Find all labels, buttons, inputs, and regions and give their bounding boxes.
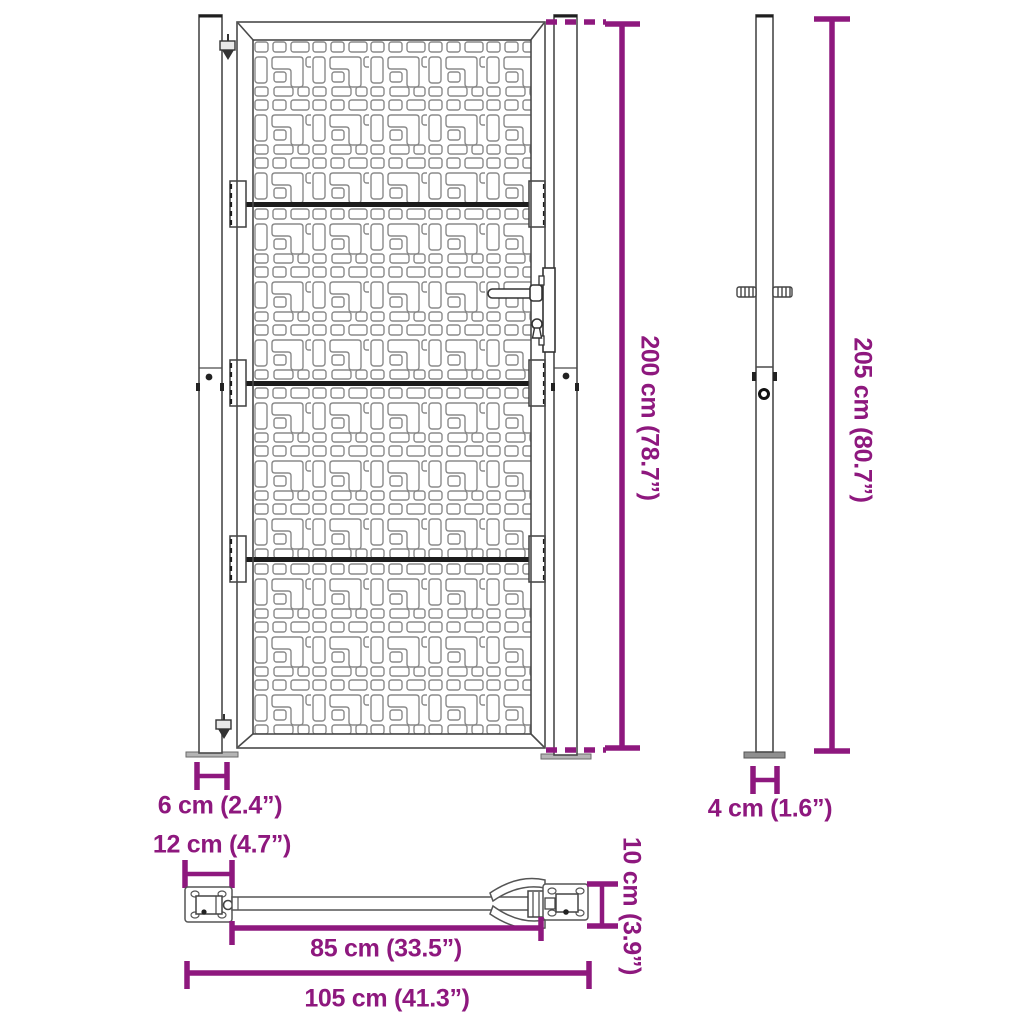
- post-side-view: [737, 15, 850, 794]
- dim-6-label: 6 cm (2.4”): [158, 792, 283, 821]
- front-right-post: [541, 15, 591, 759]
- dim-12-label: 12 cm (4.7”): [153, 831, 291, 860]
- gate-rail: [240, 381, 542, 386]
- gate-leaf: [230, 22, 555, 748]
- dim-205-label: 205 cm (80.7”): [848, 337, 877, 502]
- gate-top-view: [185, 860, 618, 989]
- top-left-plate: [185, 887, 233, 922]
- top-bar: [232, 897, 529, 910]
- dim-85-label: 85 cm (33.5”): [310, 935, 462, 964]
- dim-12-bracket: [185, 860, 232, 888]
- dim-205-line: [814, 19, 850, 751]
- dim-6-bracket: [197, 762, 227, 790]
- gate-dimension-diagram: 200 cm (78.7”) 205 cm (80.7”) 6 cm (2.4”…: [0, 0, 1024, 1024]
- top-right-plate: [543, 884, 588, 920]
- gate-front-view: [186, 15, 640, 790]
- gate-rail: [240, 202, 542, 207]
- dim-4-label: 4 cm (1.6”): [708, 795, 833, 824]
- dim-4-bracket: [753, 766, 777, 794]
- dim-105-label: 105 cm (41.3”): [304, 985, 469, 1014]
- dim-10-label: 10 cm (3.9”): [617, 837, 646, 975]
- dim-10-bracket: [587, 884, 618, 926]
- dim-200-label: 200 cm (78.7”): [635, 335, 664, 500]
- gate-rail: [240, 557, 542, 562]
- diagram-drawing: [0, 0, 1024, 1024]
